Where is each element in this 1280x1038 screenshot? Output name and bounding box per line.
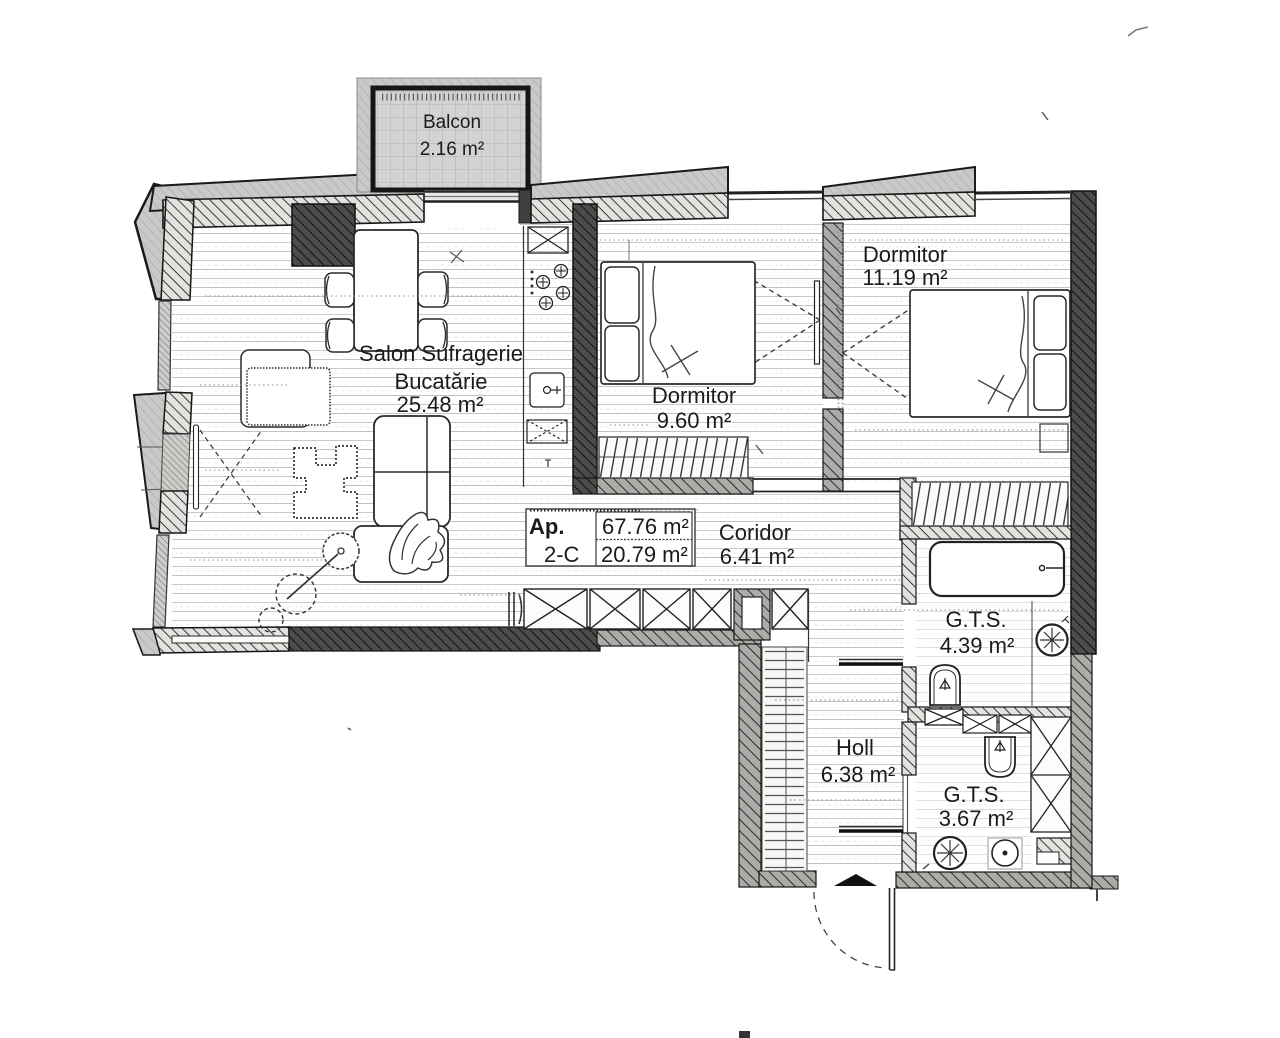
svg-text:Ap.: Ap. [529, 514, 564, 539]
svg-text:Salon Sufragerie: Salon Sufragerie [359, 341, 523, 366]
svg-text:11.19 m²: 11.19 m² [862, 265, 947, 290]
svg-text:G.T.S.: G.T.S. [945, 607, 1006, 632]
svg-text:6.38 m²: 6.38 m² [821, 762, 896, 787]
svg-text:20.79 m²: 20.79 m² [601, 542, 688, 567]
svg-text:Coridor: Coridor [719, 520, 791, 545]
svg-text:2-C: 2-C [544, 542, 580, 567]
svg-text:Bucatărie: Bucatărie [395, 369, 488, 394]
svg-text:3.67 m²: 3.67 m² [939, 806, 1014, 831]
svg-text:G.T.S.: G.T.S. [943, 782, 1004, 807]
svg-text:Holl: Holl [836, 735, 874, 760]
svg-text:25.48 m²: 25.48 m² [397, 392, 484, 417]
svg-text:2.16 m²: 2.16 m² [420, 139, 484, 160]
svg-text:4.39 m²: 4.39 m² [940, 633, 1015, 658]
svg-text:Balcon: Balcon [423, 112, 481, 133]
svg-text:6.41 m²: 6.41 m² [720, 544, 795, 569]
svg-text:9.60 m²: 9.60 m² [657, 408, 732, 433]
svg-text:67.76 m²: 67.76 m² [602, 514, 689, 539]
svg-text:Dormitor: Dormitor [652, 383, 736, 408]
svg-text:Dormitor: Dormitor [863, 242, 947, 267]
